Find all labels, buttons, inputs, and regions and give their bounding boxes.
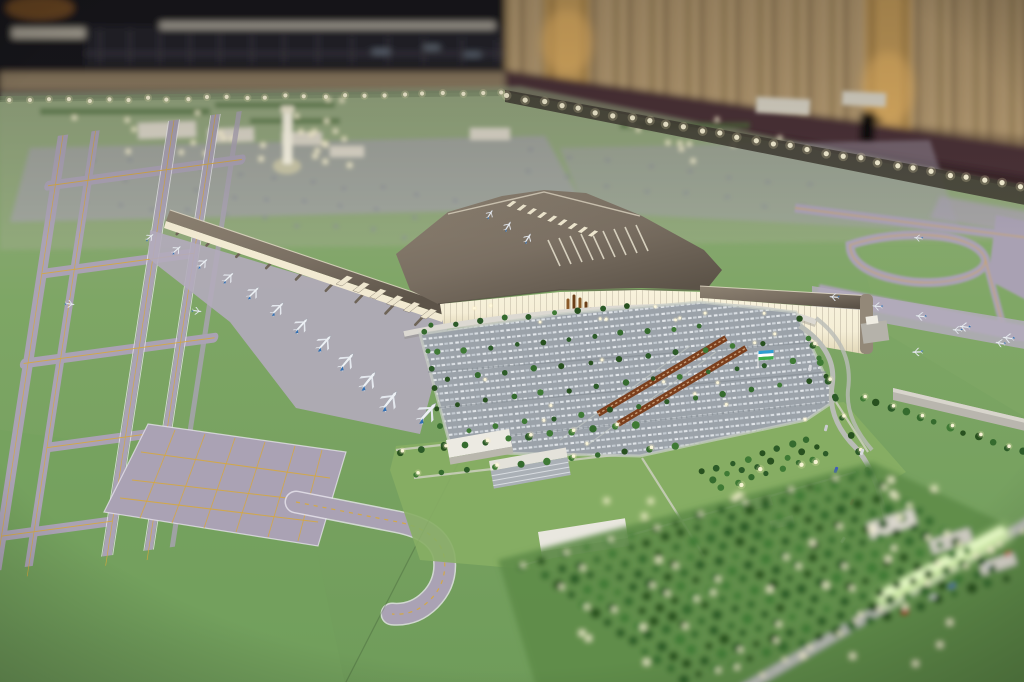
- scene-canvas: [0, 0, 1024, 682]
- vignette: [0, 0, 1024, 682]
- photo-airport-scale-model: [0, 0, 1024, 682]
